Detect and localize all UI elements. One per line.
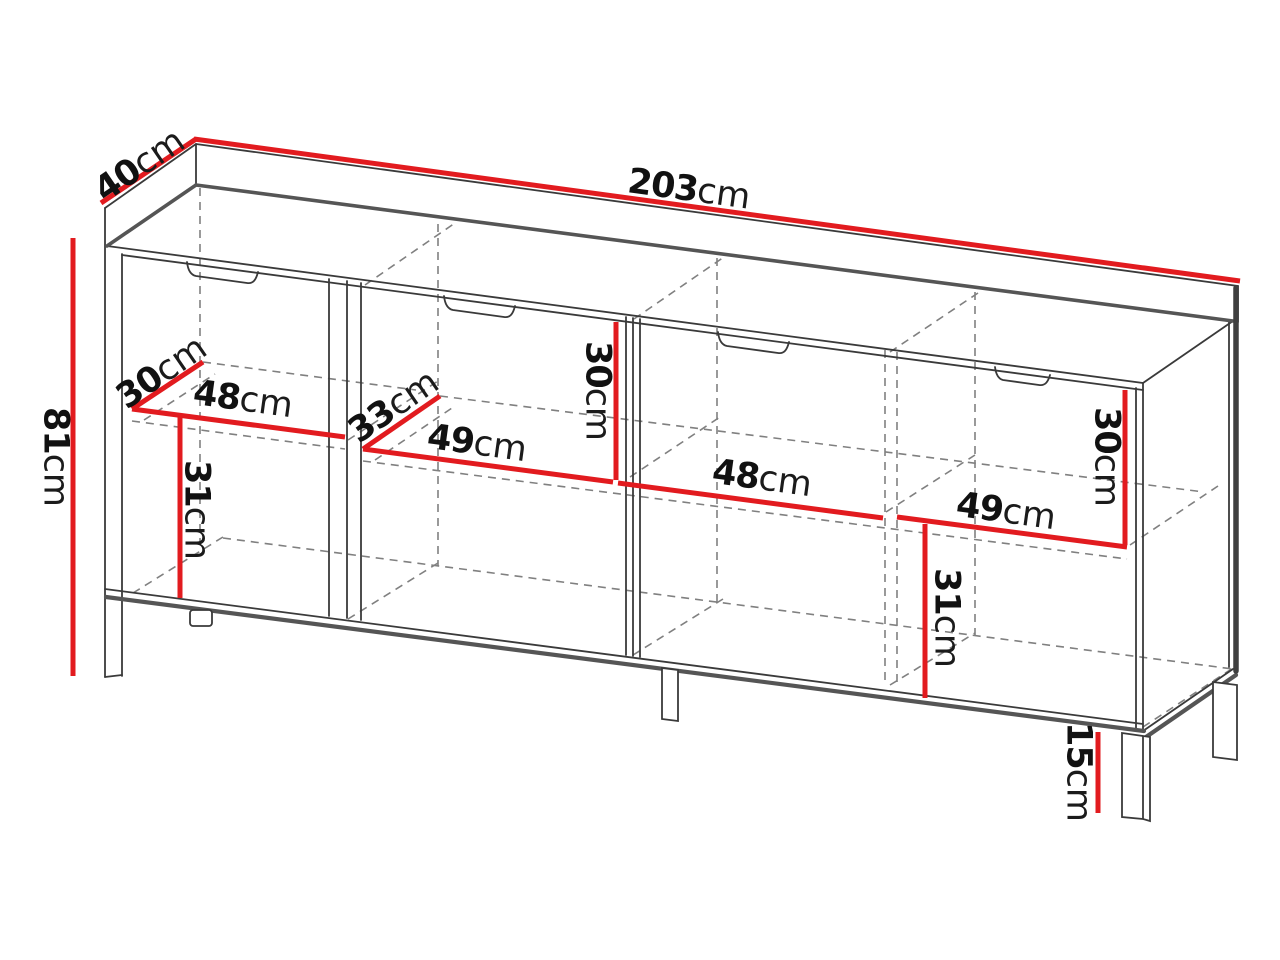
section3-width-line — [618, 483, 883, 518]
section4-width-line — [897, 517, 1127, 547]
shelf-depth-left-line — [132, 362, 203, 409]
hidden-edges — [132, 188, 1233, 727]
cabinet-outline — [105, 144, 1238, 731]
diagram-canvas: 203cm 40cm 81cm 30cm 48cm 33cm 49cm 30cm… — [0, 0, 1280, 960]
section1-width-line — [132, 409, 345, 437]
furniture-line-drawing — [0, 0, 1280, 960]
dimension-lines — [73, 139, 1240, 813]
